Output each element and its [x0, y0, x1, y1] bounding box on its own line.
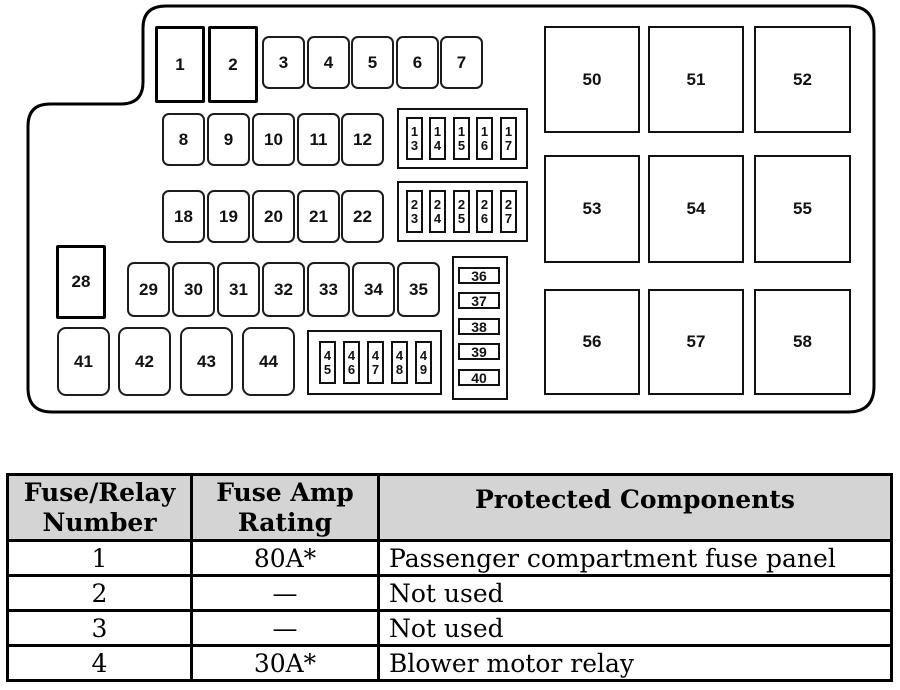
table-row: 3 — Not used	[8, 611, 892, 646]
fuse-rating-table: Fuse/Relay Number Fuse Amp Rating Protec…	[6, 473, 893, 682]
fuse-20-label: 20	[264, 207, 283, 227]
fuse-44-label: 44	[259, 352, 278, 372]
fuse-14-label: 1 4	[434, 125, 441, 152]
relay-57: 57	[648, 289, 744, 395]
protected-component-cell: Not used	[379, 576, 892, 611]
relay-54: 54	[648, 155, 744, 263]
fuse-16-label: 1 6	[481, 125, 488, 152]
relay-53: 53	[544, 155, 640, 263]
protected-component-cell: Not used	[379, 611, 892, 646]
fuse-12: 12	[341, 113, 384, 166]
fuse-24: 2 4	[429, 190, 446, 233]
fuse-19-label: 19	[219, 207, 238, 227]
fuse-47-label: 4 7	[372, 349, 379, 376]
fuse-13-label: 1 3	[411, 125, 418, 152]
fuse-39-label: 39	[471, 344, 487, 360]
fuse-44: 44	[242, 327, 295, 396]
header-fuse-relay-number: Fuse/Relay Number	[8, 475, 192, 541]
fuse-9: 9	[207, 113, 250, 166]
protected-component-cell: Blower motor relay	[379, 646, 892, 681]
fuse-40-label: 40	[471, 370, 487, 386]
relay-1-label: 1	[175, 55, 184, 75]
fuse-10-label: 10	[264, 130, 283, 150]
relay-52: 52	[754, 26, 851, 133]
fuse-number-cell: 1	[8, 541, 192, 576]
fuse-27-label: 2 7	[505, 198, 512, 225]
fuse-23-label: 2 3	[411, 198, 418, 225]
fuse-24-label: 2 4	[434, 198, 441, 225]
fuse-32-label: 32	[274, 280, 293, 300]
fuse-3-label: 3	[279, 53, 288, 73]
fuse-49: 4 9	[415, 341, 432, 384]
fuse-16: 1 6	[476, 117, 493, 160]
fuse-4: 4	[307, 36, 350, 89]
fuse-21-label: 21	[309, 207, 328, 227]
relay-58-label: 58	[793, 332, 812, 352]
table-row: 2 — Not used	[8, 576, 892, 611]
header-fuse-amp-rating: Fuse Amp Rating	[192, 475, 379, 541]
relay-2-label: 2	[228, 55, 237, 75]
fuse-18-label: 18	[174, 207, 193, 227]
relay-28: 28	[56, 245, 106, 319]
relay-56: 56	[544, 289, 640, 395]
fuse-number-cell: 4	[8, 646, 192, 681]
fuse-39: 39	[458, 343, 500, 360]
fuse-45-label: 4 5	[324, 349, 331, 376]
fuse-47: 4 7	[367, 341, 384, 384]
fuse-12-label: 12	[353, 130, 372, 150]
fuse-43: 43	[180, 327, 233, 396]
fuse-42-label: 42	[135, 352, 154, 372]
fuse-45: 4 5	[319, 341, 336, 384]
fuse-11: 11	[297, 113, 340, 166]
fuse-38-label: 38	[471, 319, 487, 335]
fuse-25-label: 2 5	[458, 198, 465, 225]
fuse-11-label: 11	[310, 130, 328, 150]
fuse-35-label: 35	[409, 280, 428, 300]
fuse-number-cell: 2	[8, 576, 192, 611]
relay-28-label: 28	[72, 272, 91, 292]
fuse-36: 36	[458, 267, 500, 284]
relay-54-label: 54	[687, 199, 706, 219]
fuse-36-label: 36	[471, 268, 487, 284]
relay-52-label: 52	[793, 70, 812, 90]
relay-55: 55	[754, 155, 851, 263]
fuse-rating-cell: —	[192, 576, 379, 611]
fuse-46: 4 6	[343, 341, 360, 384]
relay-51: 51	[648, 26, 744, 133]
fuse-29-label: 29	[139, 280, 158, 300]
fuse-42: 42	[118, 327, 171, 396]
fuse-6-label: 6	[413, 53, 422, 73]
fuse-27: 2 7	[500, 190, 517, 233]
fuse-6: 6	[396, 36, 439, 89]
fuse-10: 10	[252, 113, 295, 166]
fuse-4-label: 4	[324, 53, 333, 73]
fuse-19: 19	[207, 190, 250, 243]
fuse-26: 2 6	[476, 190, 493, 233]
fuse-48: 4 8	[391, 341, 408, 384]
relay-50-label: 50	[583, 70, 602, 90]
fuse-30: 30	[172, 262, 215, 317]
fuse-22-label: 22	[353, 207, 372, 227]
fuse-rating-cell: 30A*	[192, 646, 379, 681]
table-row: 4 30A* Blower motor relay	[8, 646, 892, 681]
relay-57-label: 57	[687, 332, 706, 352]
fuse-41-label: 41	[74, 352, 93, 372]
fuse-box-page: 1 2 3 4 5 6 7 8 9 10 11 12 1 3 1 4 1 5 1…	[0, 0, 900, 690]
fuse-17-label: 1 7	[505, 125, 512, 152]
fuse-34-label: 34	[364, 280, 383, 300]
fuse-5: 5	[351, 36, 394, 89]
fuse-13: 1 3	[406, 117, 423, 160]
fuse-21: 21	[297, 190, 340, 243]
fuse-37-label: 37	[471, 293, 487, 309]
fuse-46-label: 4 6	[348, 349, 355, 376]
fuse-33-label: 33	[319, 280, 338, 300]
fuse-20: 20	[252, 190, 295, 243]
fuse-14: 1 4	[429, 117, 446, 160]
fuse-7: 7	[440, 36, 483, 89]
relay-55-label: 55	[793, 199, 812, 219]
fuse-15: 1 5	[453, 117, 470, 160]
fuse-32: 32	[262, 262, 305, 317]
relay-58: 58	[754, 289, 851, 395]
table-header-row: Fuse/Relay Number Fuse Amp Rating Protec…	[8, 475, 892, 541]
fuse-37: 37	[458, 292, 500, 309]
fuse-8-label: 8	[179, 130, 188, 150]
fuse-29: 29	[127, 262, 170, 317]
fuse-31: 31	[217, 262, 260, 317]
fuse-15-label: 1 5	[458, 125, 465, 152]
fuse-25: 2 5	[453, 190, 470, 233]
relay-53-label: 53	[583, 199, 602, 219]
fuse-9-label: 9	[224, 130, 233, 150]
fuse-23: 2 3	[406, 190, 423, 233]
relay-2: 2	[208, 26, 258, 103]
fuse-26-label: 2 6	[481, 198, 488, 225]
fuse-33: 33	[307, 262, 350, 317]
fuse-31-label: 31	[229, 280, 248, 300]
fuse-43-label: 43	[197, 352, 216, 372]
fuse-40: 40	[458, 369, 500, 386]
relay-51-label: 51	[687, 70, 706, 90]
fuse-34: 34	[352, 262, 395, 317]
header-protected-components: Protected Components	[379, 475, 892, 541]
fuse-8: 8	[162, 113, 205, 166]
fuse-number-cell: 3	[8, 611, 192, 646]
relay-1: 1	[155, 26, 205, 103]
fuse-38: 38	[458, 318, 500, 335]
fuse-49-label: 4 9	[420, 349, 427, 376]
fuse-17: 1 7	[500, 117, 517, 160]
fuse-18: 18	[162, 190, 205, 243]
fuse-48-label: 4 8	[396, 349, 403, 376]
fuse-5-label: 5	[368, 53, 377, 73]
protected-component-cell: Passenger compartment fuse panel	[379, 541, 892, 576]
fuse-rating-cell: 80A*	[192, 541, 379, 576]
fuse-41: 41	[57, 327, 110, 396]
fuse-rating-cell: —	[192, 611, 379, 646]
fuse-22: 22	[341, 190, 384, 243]
fuse-3: 3	[262, 36, 305, 89]
relay-50: 50	[544, 26, 640, 133]
fuse-7-label: 7	[457, 53, 466, 73]
table-row: 1 80A* Passenger compartment fuse panel	[8, 541, 892, 576]
fuse-30-label: 30	[184, 280, 203, 300]
relay-56-label: 56	[583, 332, 602, 352]
fuse-35: 35	[397, 262, 440, 317]
